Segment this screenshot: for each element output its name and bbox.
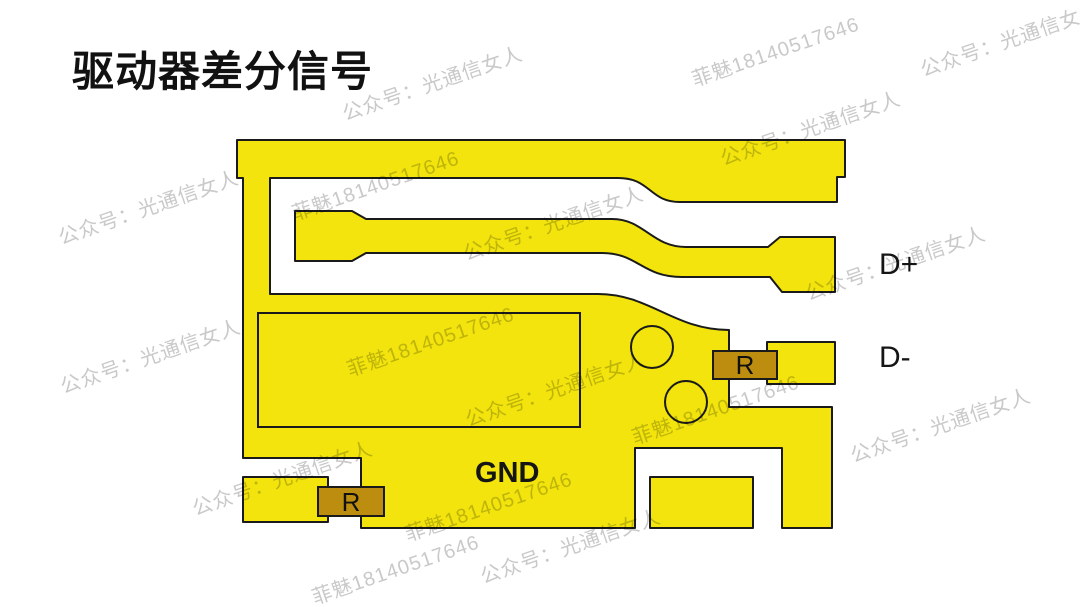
gnd-plane-shape	[237, 140, 845, 528]
label-gnd: GND	[475, 459, 539, 488]
resistor-bottom-label: R	[342, 489, 361, 515]
label-d-plus: D+	[879, 250, 918, 280]
via-circle	[631, 326, 673, 368]
pcb-layout-diagram	[0, 0, 1080, 607]
via-circle	[665, 381, 707, 423]
resistor-top-label: R	[736, 352, 755, 378]
resistor-bottom: R	[317, 486, 385, 517]
resistor-top: R	[712, 350, 778, 380]
slide-canvas: 驱动器差分信号 R R D+ D- GND 公众号：光通信女人菲魅1814051…	[0, 0, 1080, 607]
d-plus-trace	[295, 211, 835, 292]
bottom-notch-pad	[650, 477, 753, 528]
bottom-left-pad	[243, 477, 328, 522]
label-d-minus: D-	[879, 343, 911, 373]
